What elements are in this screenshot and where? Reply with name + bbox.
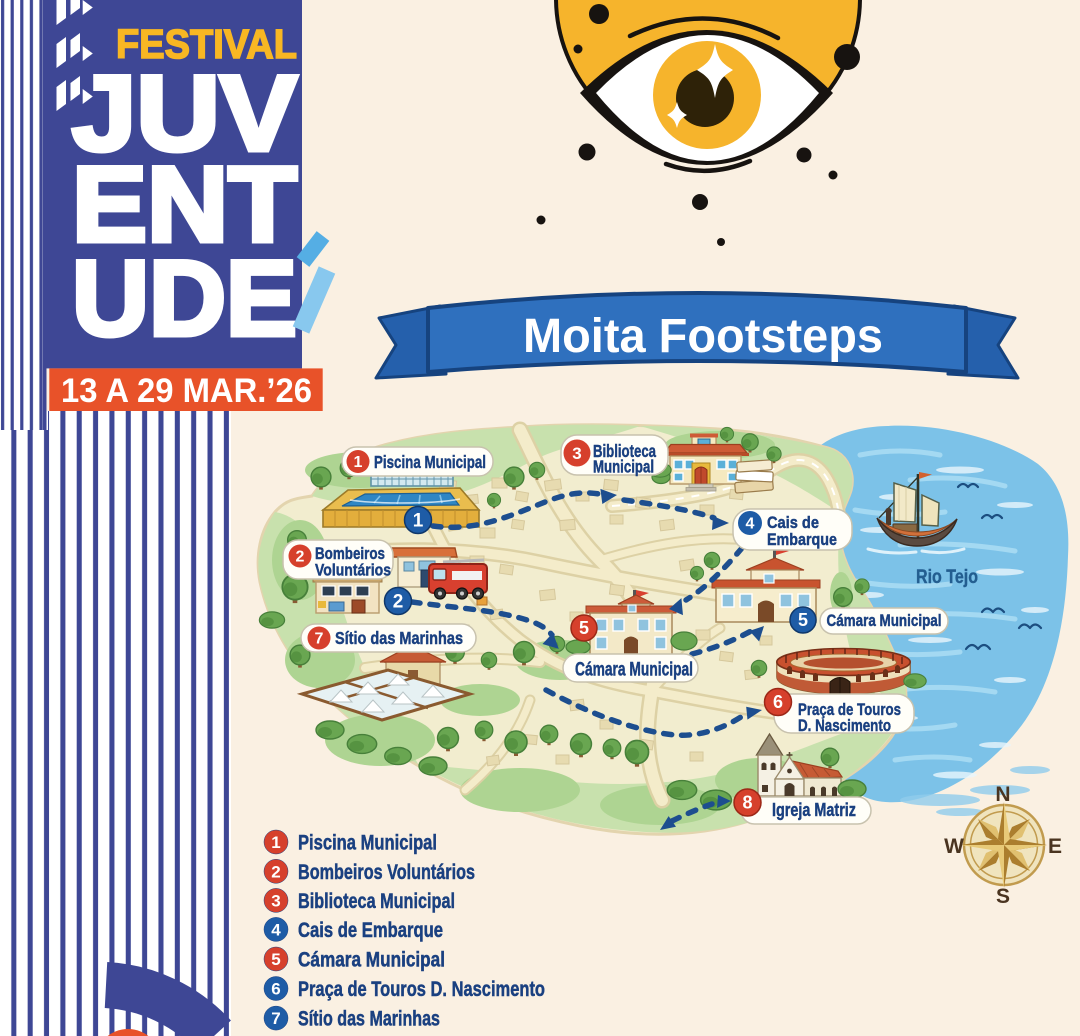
svg-text:6: 6 <box>271 980 280 999</box>
svg-text:Igreja Matriz: Igreja Matriz <box>772 800 856 820</box>
svg-text:N: N <box>995 783 1010 806</box>
svg-text:2: 2 <box>393 592 404 613</box>
svg-text:Municipal: Municipal <box>593 457 654 477</box>
svg-text:Embarque: Embarque <box>767 530 837 549</box>
svg-text:Sítio das Marinhas: Sítio das Marinhas <box>298 1008 440 1031</box>
svg-text:Biblioteca Municipal: Biblioteca Municipal <box>298 890 455 913</box>
svg-text:Cámara Municipal: Cámara Municipal <box>827 611 942 630</box>
svg-text:13 A 29 MAR.’26: 13 A 29 MAR.’26 <box>61 372 312 410</box>
svg-text:7: 7 <box>271 1009 280 1028</box>
svg-text:5: 5 <box>579 618 589 638</box>
svg-text:8: 8 <box>742 793 752 813</box>
svg-text:2: 2 <box>296 549 305 566</box>
svg-text:2: 2 <box>271 862 280 881</box>
svg-text:Bombeiros: Bombeiros <box>315 545 385 563</box>
svg-text:6: 6 <box>773 692 783 712</box>
svg-text:S: S <box>996 885 1010 908</box>
svg-text:Praça de Touros D. Nascimento: Praça de Touros D. Nascimento <box>298 978 545 1001</box>
svg-text:Rio Tejo: Rio Tejo <box>916 567 978 588</box>
svg-text:UDE: UDE <box>72 238 297 358</box>
svg-text:Cais de Embarque: Cais de Embarque <box>298 919 443 942</box>
svg-text:1: 1 <box>413 511 424 532</box>
svg-text:W: W <box>944 835 964 858</box>
svg-text:4: 4 <box>271 920 281 939</box>
svg-text:5: 5 <box>798 610 808 630</box>
svg-text:5: 5 <box>271 950 280 969</box>
svg-text:3: 3 <box>572 444 581 463</box>
svg-text:Cámara Municipal: Cámara Municipal <box>298 949 445 972</box>
svg-text:Voluntários: Voluntários <box>315 562 391 580</box>
svg-text:1: 1 <box>354 454 363 471</box>
svg-text:E: E <box>1048 835 1062 858</box>
svg-text:Moita Footsteps: Moita Footsteps <box>523 310 883 363</box>
svg-text:Piscina Municipal: Piscina Municipal <box>298 832 437 855</box>
svg-text:7: 7 <box>315 631 324 648</box>
svg-text:4: 4 <box>746 516 755 533</box>
svg-text:D. Nascimento: D. Nascimento <box>798 716 891 735</box>
svg-text:3: 3 <box>271 891 280 910</box>
svg-text:Sítio das Marinhas: Sítio das Marinhas <box>335 628 463 648</box>
svg-text:Bombeiros Voluntários: Bombeiros Voluntários <box>298 861 475 884</box>
svg-text:Piscina Municipal: Piscina Municipal <box>374 452 486 472</box>
svg-text:Cámara Municipal: Cámara Municipal <box>575 660 693 681</box>
svg-text:1: 1 <box>271 833 280 852</box>
